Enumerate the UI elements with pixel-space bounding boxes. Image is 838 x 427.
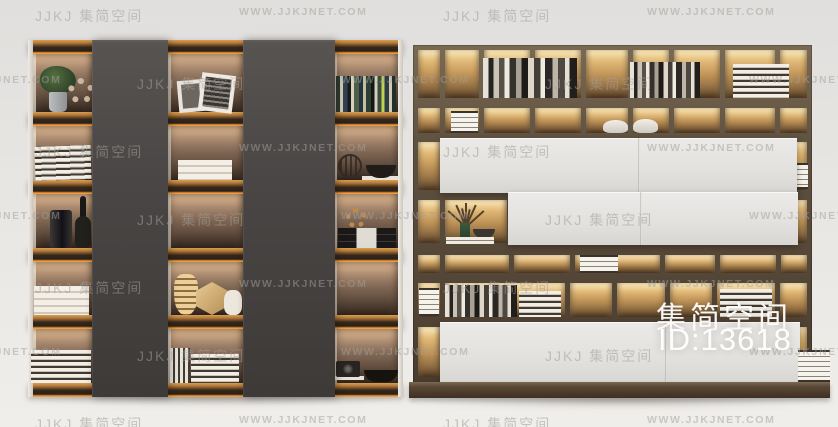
- decor-ring-ornament-small: [346, 208, 366, 228]
- decor-white-book-stack: [191, 354, 239, 383]
- white-door-panel: [440, 138, 797, 193]
- left-bookshelf: [28, 40, 403, 397]
- door-seam: [640, 192, 642, 245]
- decor-striped-box: [451, 111, 478, 133]
- shelf: [28, 112, 403, 126]
- decor-white-jar: [633, 119, 658, 133]
- white-door-panel: [508, 192, 798, 245]
- decor-wire-sphere: [338, 154, 362, 178]
- decor-white-books: [446, 237, 494, 244]
- gray-front-panel: [243, 40, 335, 397]
- compartment: [168, 194, 244, 248]
- decor-ring-ornament: [68, 78, 94, 104]
- watermark-url-text: WWW.JJKJNET.COM: [239, 6, 367, 18]
- decor-gold-striped-vase: [174, 274, 198, 315]
- watermark-brand-text: JJKJ 集简空间: [443, 6, 551, 26]
- shelf: [28, 248, 403, 262]
- decor-bottle-neck: [80, 196, 86, 218]
- base-plinth: [409, 382, 830, 398]
- watermark-url-text: WWW.JJKJNET.COM: [239, 414, 367, 426]
- decor-white-book-stack: [34, 286, 89, 315]
- watermark-brand-text: JJKJ 集简空间: [443, 414, 551, 427]
- decor-book-row: [336, 76, 396, 112]
- door-seam: [638, 138, 640, 193]
- decor-book-row: [483, 58, 577, 98]
- watermark-url-text: WWW.JJKJNET.COM: [647, 414, 775, 426]
- shelf: [28, 383, 403, 397]
- white-door-panel: [440, 322, 800, 383]
- decor-striped-box: [419, 288, 439, 316]
- decor-white-jar: [603, 120, 628, 133]
- watermark-brand-text: JJKJ 集简空间: [35, 6, 143, 26]
- decor-picture-frame: [198, 72, 236, 114]
- decor-camera-lens: [343, 364, 353, 374]
- shelf: [28, 180, 403, 194]
- decor-magazine-stack: [733, 64, 789, 98]
- decor-magazine-stack: [720, 289, 772, 317]
- shelf: [28, 40, 403, 54]
- compartment: [334, 262, 398, 315]
- decor-black-books: [338, 228, 396, 248]
- watermark-brand-text: JJKJ 集简空间: [35, 414, 143, 427]
- decor-striped-box: [580, 255, 618, 273]
- decor-cylinder-vase: [50, 210, 72, 248]
- gray-front-panel: [92, 40, 168, 397]
- door-seam: [665, 322, 667, 383]
- shelf: [28, 315, 403, 329]
- decor-striped-box-stack: [798, 350, 830, 382]
- decor-magazine-stack: [519, 291, 561, 317]
- watermark-url-text: WWW.JJKJNET.COM: [647, 6, 775, 18]
- right-cabinet: [413, 45, 812, 383]
- decor-vertical-books: [170, 348, 190, 383]
- decor-magazine-stack: [34, 145, 91, 181]
- left-side-board: [28, 40, 33, 397]
- decor-book-row: [630, 62, 700, 98]
- decor-white-jar: [224, 290, 242, 315]
- right-side-board: [398, 40, 403, 397]
- decor-magazine-stack: [31, 350, 91, 383]
- decor-bottle-vase: [75, 216, 91, 248]
- decor-white-books: [178, 160, 232, 180]
- product-photo: Two modern bookshelf display cabinet 3D …: [0, 0, 838, 427]
- decor-book-row: [445, 285, 517, 317]
- decor-plant-pot: [49, 92, 67, 112]
